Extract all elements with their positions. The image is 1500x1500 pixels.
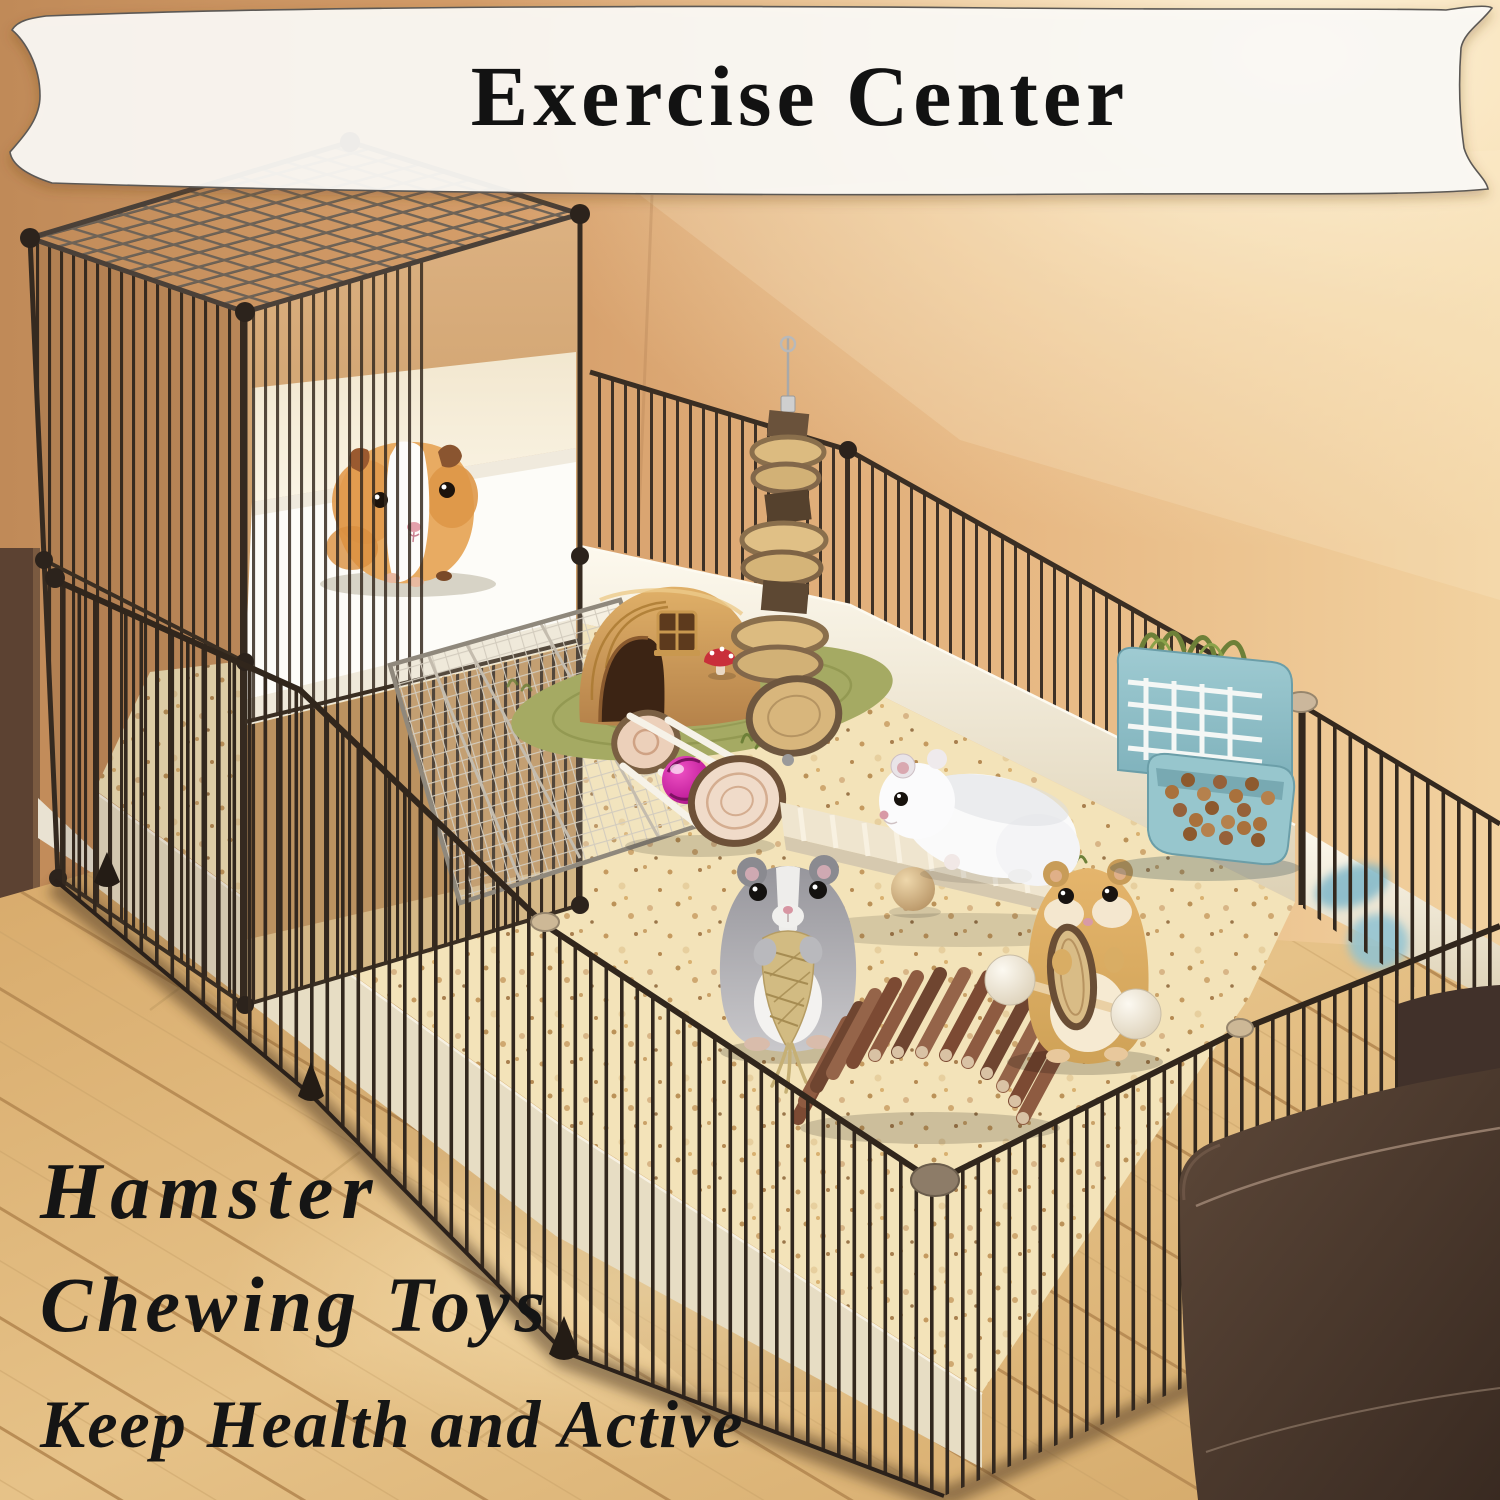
product-photo-hamster-cage: Exercise Center Hamster Chewing Toys Kee…	[0, 0, 1500, 1500]
door	[0, 548, 36, 905]
caption-chewing-toys: Chewing Toys	[40, 1266, 550, 1344]
door-frame	[33, 548, 40, 905]
caption-keep-health: Keep Health and Active	[40, 1390, 744, 1458]
house-window	[654, 612, 700, 656]
caption-hamster: Hamster	[40, 1152, 380, 1232]
connector-ball	[839, 441, 857, 459]
corner-disc-front	[911, 1164, 959, 1196]
corner-disc	[531, 913, 559, 931]
banner-title: Exercise Center	[400, 46, 1200, 146]
